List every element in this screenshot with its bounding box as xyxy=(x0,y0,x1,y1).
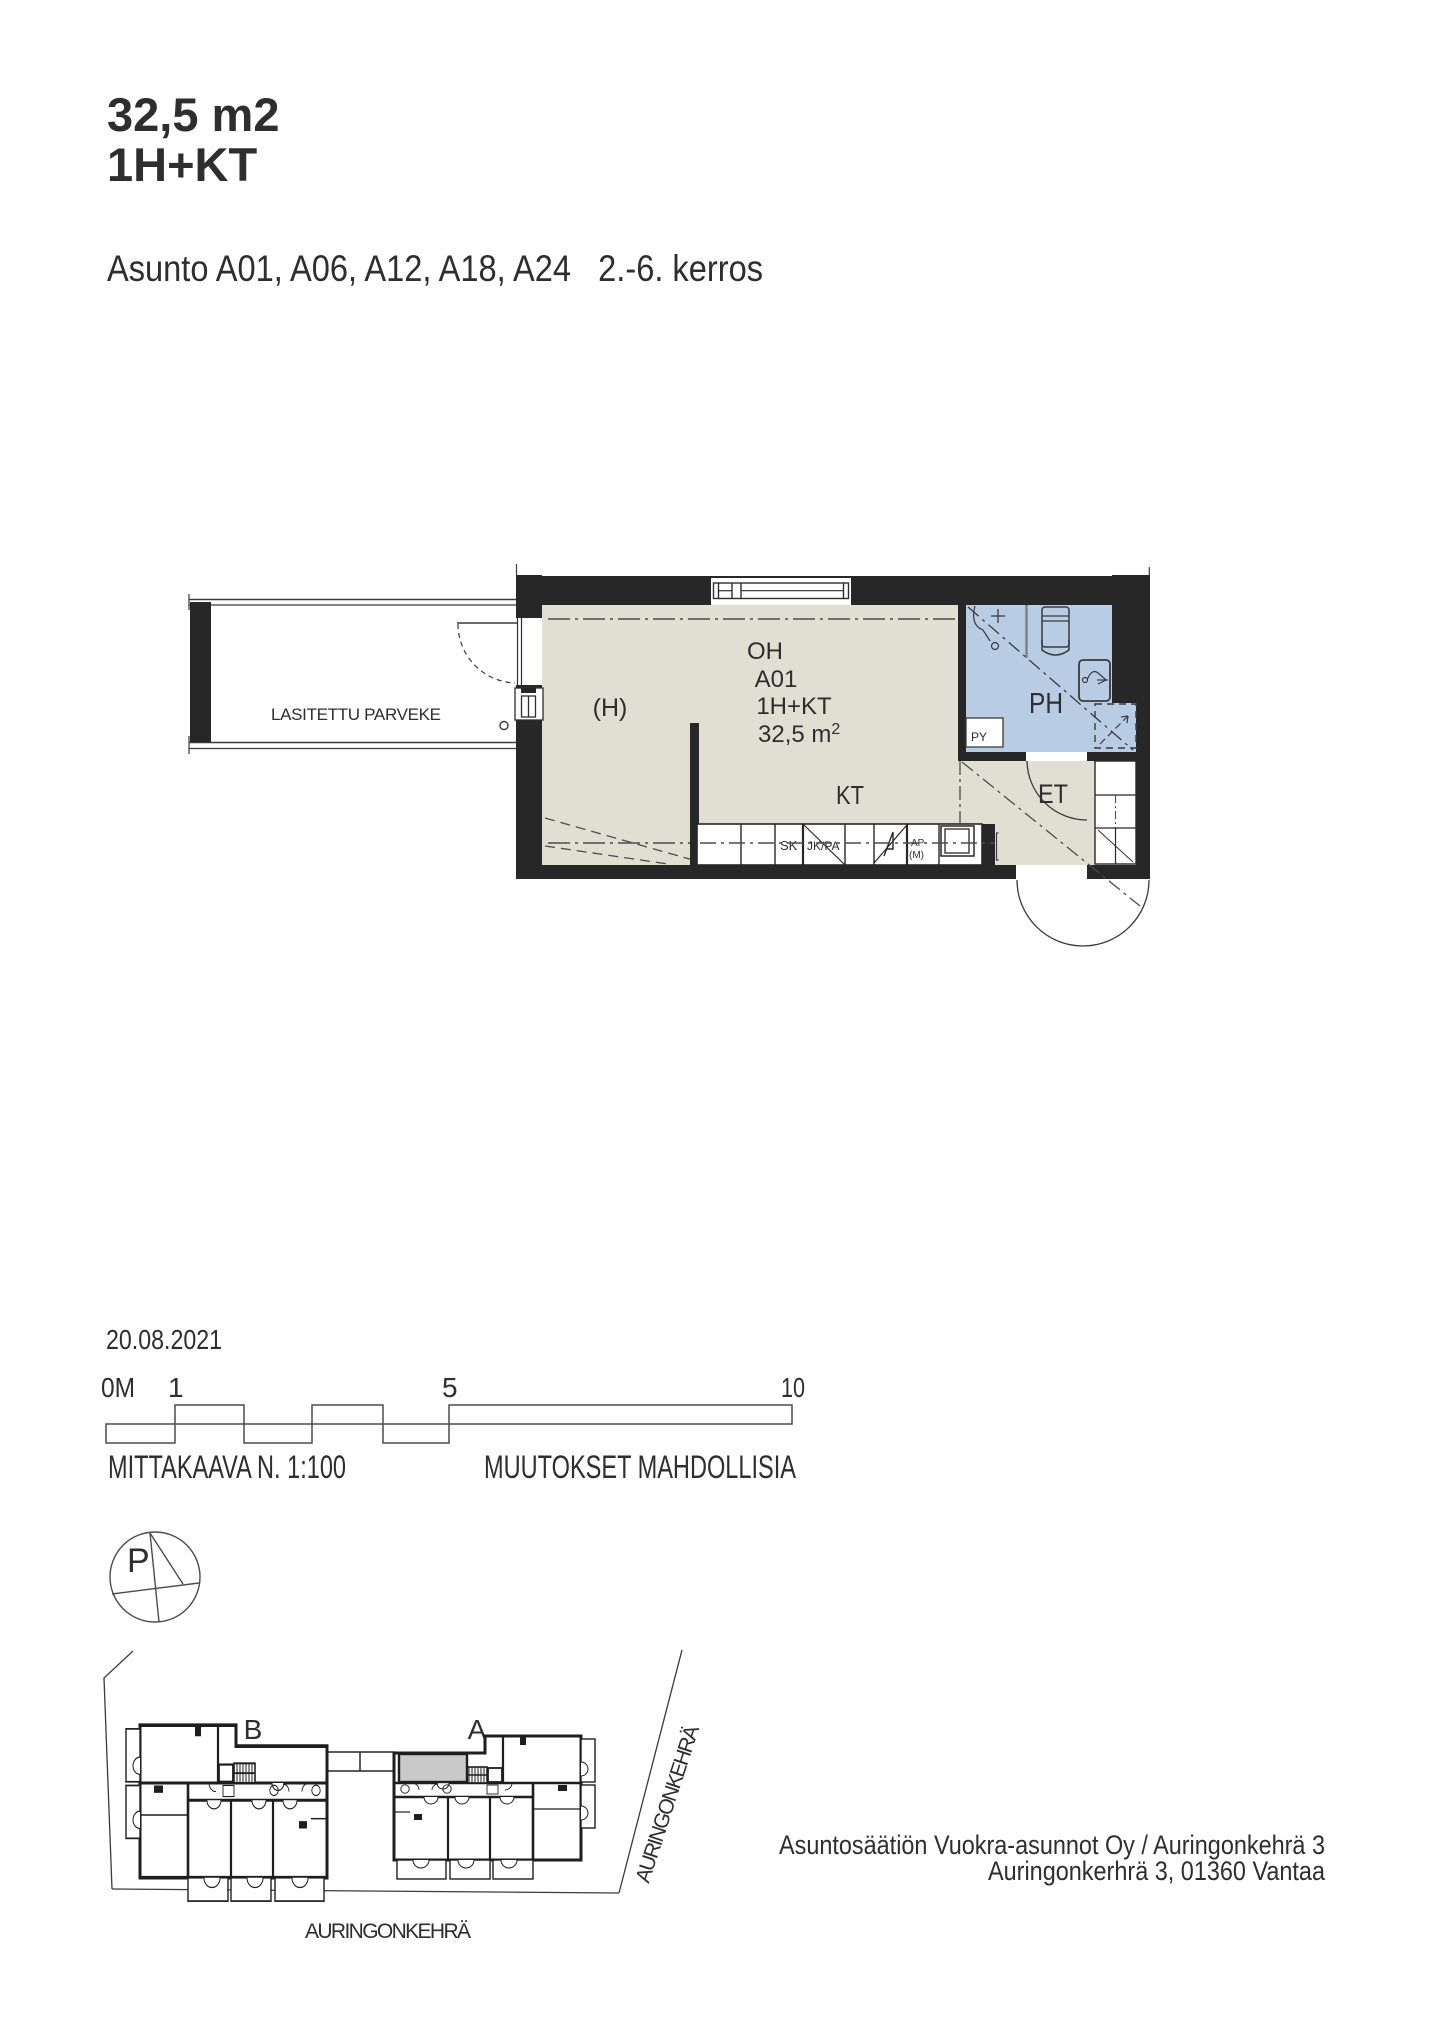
svg-text:1H+KT: 1H+KT xyxy=(107,138,257,191)
svg-text:A01: A01 xyxy=(755,666,798,693)
svg-text:32,5 m2: 32,5 m2 xyxy=(758,721,840,748)
svg-text:B: B xyxy=(244,1714,263,1745)
svg-text:Auringonkerhrä 3, 01360 Vantaa: Auringonkerhrä 3, 01360 Vantaa xyxy=(988,1856,1326,1886)
svg-text:PH: PH xyxy=(1029,688,1063,720)
svg-text:10: 10 xyxy=(781,1372,805,1403)
svg-text:20.08.2021: 20.08.2021 xyxy=(106,1324,222,1355)
svg-text:1: 1 xyxy=(168,1372,184,1403)
svg-text:PY: PY xyxy=(971,730,987,744)
svg-text:JK/PA: JK/PA xyxy=(807,839,839,853)
svg-text:1H+KT: 1H+KT xyxy=(756,693,832,720)
svg-text:ET: ET xyxy=(1038,779,1068,809)
svg-text:MITTAKAAVA N. 1:100: MITTAKAAVA N. 1:100 xyxy=(108,1449,346,1485)
svg-text:(H): (H) xyxy=(593,694,628,722)
svg-text:Asunto A01, A06, A12, A18, A24: Asunto A01, A06, A12, A18, A24 2.-6. ker… xyxy=(107,248,763,289)
svg-text:MUUTOKSET MAHDOLLISIA: MUUTOKSET MAHDOLLISIA xyxy=(484,1449,796,1485)
svg-text:SK: SK xyxy=(780,838,798,853)
svg-text:5: 5 xyxy=(442,1372,458,1403)
svg-text:0M: 0M xyxy=(101,1372,135,1403)
svg-text:LASITETTU PARVEKE: LASITETTU PARVEKE xyxy=(271,705,441,724)
svg-text:(M): (M) xyxy=(909,850,924,861)
svg-text:AURINGONKEHRÄ: AURINGONKEHRÄ xyxy=(305,1920,471,1943)
svg-text:OH: OH xyxy=(747,638,783,665)
svg-text:KT: KT xyxy=(836,780,864,810)
svg-text:P: P xyxy=(127,1542,150,1580)
svg-text:32,5 m2: 32,5 m2 xyxy=(107,88,279,141)
